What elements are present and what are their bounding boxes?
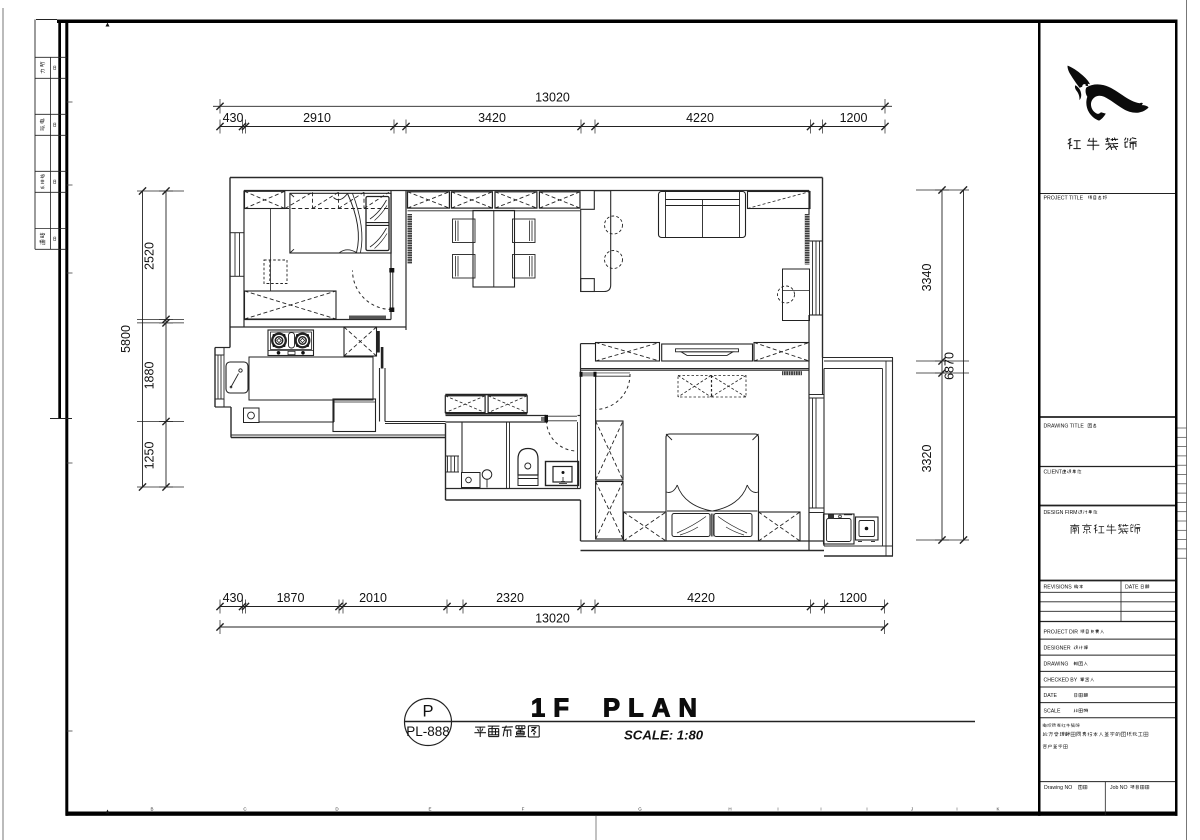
svg-text:J: J: [911, 807, 913, 812]
svg-text:K: K: [996, 807, 999, 812]
svg-text:REVISIONS: REVISIONS: [1044, 585, 1073, 591]
svg-text:P: P: [422, 703, 433, 721]
svg-text:1200: 1200: [839, 591, 867, 605]
svg-text:430: 430: [223, 591, 244, 605]
svg-text:H: H: [728, 807, 731, 812]
svg-text:DATE: DATE: [1125, 585, 1139, 591]
svg-text:F: F: [522, 807, 525, 812]
svg-text:3340: 3340: [920, 264, 934, 292]
svg-text:6870: 6870: [943, 352, 957, 380]
svg-text:2910: 2910: [303, 111, 331, 125]
svg-text:Job NO: Job NO: [1110, 785, 1128, 791]
svg-text:I: I: [820, 807, 821, 812]
svg-text:PROJECT DIR: PROJECT DIR: [1044, 630, 1079, 636]
svg-text:Drawing NO: Drawing NO: [1044, 785, 1072, 791]
svg-text:1F PLAN: 1F PLAN: [531, 695, 705, 723]
svg-text:DESIGNER: DESIGNER: [1044, 646, 1071, 652]
svg-text:PROJECT TITLE: PROJECT TITLE: [1044, 196, 1084, 202]
svg-text:3420: 3420: [478, 111, 506, 125]
svg-text:3320: 3320: [920, 445, 934, 473]
svg-text:DRAWING: DRAWING: [1044, 662, 1069, 668]
svg-text:1250: 1250: [143, 442, 157, 470]
svg-text:SCALE: 1:80: SCALE: 1:80: [624, 728, 704, 743]
svg-text:G: G: [638, 807, 642, 812]
svg-text:5800: 5800: [119, 325, 133, 353]
svg-text:CLIENT: CLIENT: [1044, 470, 1063, 476]
svg-text:2520: 2520: [143, 242, 157, 270]
svg-text:CHECKED BY: CHECKED BY: [1044, 678, 1078, 684]
svg-text:I: I: [777, 807, 778, 812]
svg-text:430: 430: [223, 111, 244, 125]
svg-text:4220: 4220: [686, 111, 714, 125]
svg-text:DATE: DATE: [1044, 693, 1058, 699]
svg-text:DRAWING TITLE: DRAWING TITLE: [1044, 424, 1085, 430]
svg-text:DESIGN FIRM: DESIGN FIRM: [1044, 510, 1078, 516]
svg-text:13020: 13020: [535, 611, 570, 625]
svg-text:2010: 2010: [359, 591, 387, 605]
svg-text:SCALE: SCALE: [1044, 709, 1062, 715]
svg-text:PL-888: PL-888: [406, 724, 450, 739]
svg-text:I: I: [866, 807, 867, 812]
svg-text:1870: 1870: [277, 591, 305, 605]
svg-text:1200: 1200: [840, 111, 868, 125]
svg-text:1880: 1880: [143, 362, 157, 390]
svg-text:13020: 13020: [535, 91, 570, 105]
svg-text:4220: 4220: [687, 591, 715, 605]
svg-text:E: E: [428, 807, 431, 812]
svg-text:I: I: [956, 807, 957, 812]
svg-text:2320: 2320: [496, 591, 524, 605]
svg-text:B: B: [150, 807, 153, 812]
